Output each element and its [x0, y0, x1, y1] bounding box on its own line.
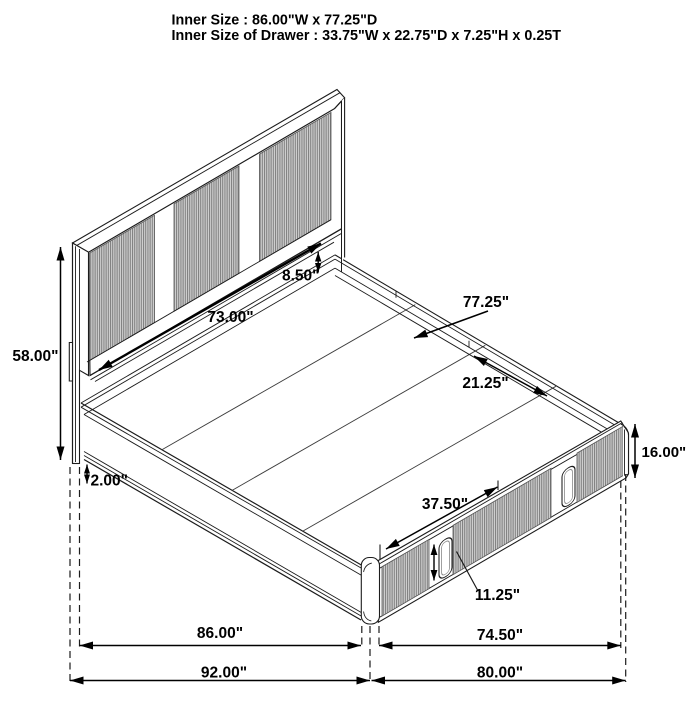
svg-text:86.00": 86.00"	[197, 625, 243, 642]
svg-text:92.00": 92.00"	[201, 665, 247, 682]
svg-text:77.25": 77.25"	[463, 294, 509, 311]
svg-text:58.00": 58.00"	[12, 348, 58, 365]
svg-text:Inner Size of Drawer : 33.75"W: Inner Size of Drawer : 33.75"W x 22.75"D…	[172, 28, 562, 44]
svg-text:2.00": 2.00"	[91, 473, 129, 490]
svg-text:8.50": 8.50"	[282, 268, 320, 285]
svg-text:37.50": 37.50"	[422, 496, 468, 513]
svg-text:80.00": 80.00"	[477, 665, 523, 682]
svg-text:16.00": 16.00"	[642, 444, 687, 461]
svg-text:74.50": 74.50"	[477, 627, 523, 644]
svg-text:73.00": 73.00"	[207, 309, 253, 326]
svg-text:Inner Size : 86.00"W x 77.25"D: Inner Size : 86.00"W x 77.25"D	[172, 13, 378, 29]
svg-text:11.25": 11.25"	[475, 587, 520, 604]
svg-text:21.25": 21.25"	[462, 375, 508, 392]
